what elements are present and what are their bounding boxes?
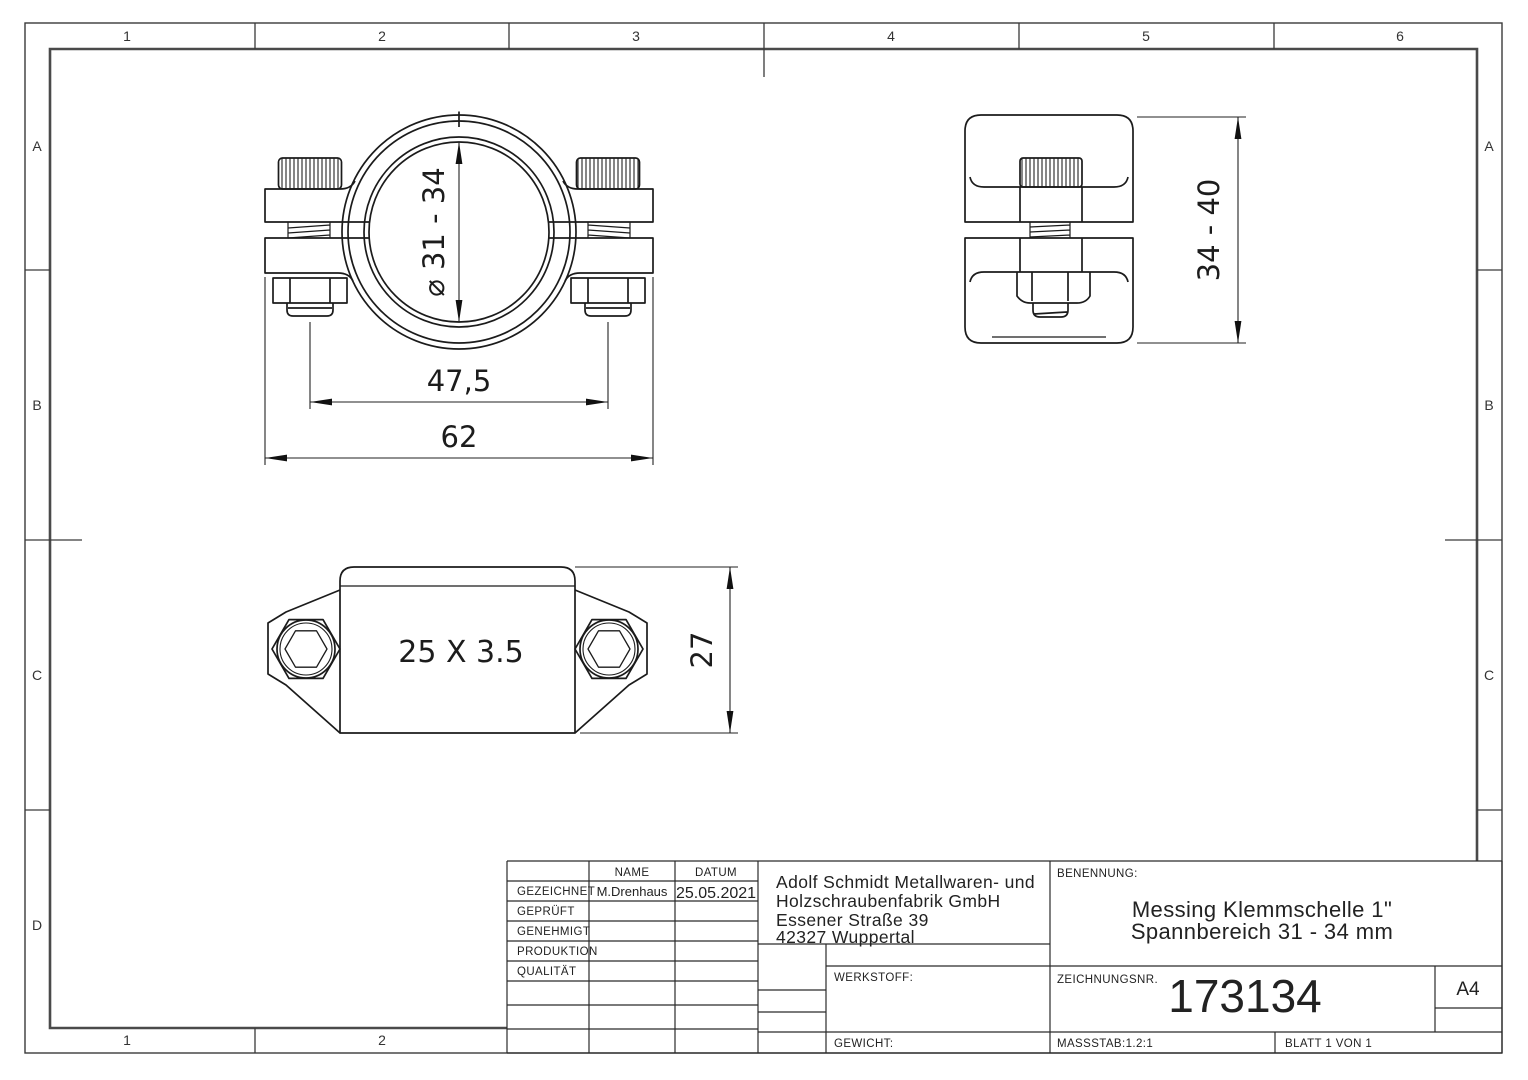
dim-label-depth: 27 — [685, 632, 719, 669]
thread-shaft — [588, 222, 630, 238]
zeichnungsnr-label: ZEICHNUNGSNR. — [1057, 974, 1158, 986]
approval-name-header: NAME — [615, 867, 650, 879]
approval-row-label: GEZEICHNET — [517, 886, 595, 898]
grid-row-label: C — [32, 667, 42, 683]
knurled-screw-head — [1020, 158, 1082, 187]
approval-row-label: GEPRÜFT — [517, 906, 575, 918]
dim-label-bolt-spacing: 47,5 — [427, 364, 492, 398]
lower-block — [965, 238, 1133, 343]
socket-hex — [285, 631, 327, 667]
approval-row-name: M.Drenhaus — [597, 884, 668, 899]
thread-shaft — [1030, 222, 1070, 238]
approval-date-header: DATUM — [695, 867, 737, 879]
approval-row-label: GENEHMIGT — [517, 926, 590, 938]
nut-collar — [287, 303, 333, 316]
drawing-canvas: 1 2 3 4 5 6 1 2 A B C D A B C — [0, 0, 1528, 1080]
company-line: 42327 Wuppertal — [776, 927, 915, 947]
grid-row-label: D — [32, 917, 42, 933]
lower-step — [970, 272, 1128, 282]
border-inner — [50, 49, 1477, 1028]
nut-collar — [585, 303, 631, 316]
scale-label: MASSSTAB:1.2:1 — [1057, 1038, 1153, 1050]
hex-nut — [571, 278, 645, 303]
nut-collar — [1033, 303, 1068, 317]
lower-flange — [265, 238, 369, 281]
grid-col-label: 5 — [1142, 28, 1150, 44]
grid-labels: 1 2 3 4 5 6 1 2 A B C D A B C — [32, 28, 1494, 1048]
side-view — [965, 115, 1133, 343]
upper-boss — [1020, 187, 1082, 222]
dim-label-diameter: ⌀ 31 - 34 — [417, 167, 451, 296]
grid-col-label: 1 — [123, 1032, 131, 1048]
approval-row-label: PRODUKTION — [517, 946, 598, 958]
grid-row-label: B — [1484, 397, 1493, 413]
werkstoff-label: WERKSTOFF: — [834, 972, 913, 984]
titleblock-text: NAME DATUM GEZEICHNET M.Drenhaus 25.05.2… — [517, 867, 1480, 1050]
drawing-number: 173134 — [1168, 970, 1322, 1022]
drawing-sheet: 1 2 3 4 5 6 1 2 A B C D A B C — [0, 0, 1528, 1080]
approval-row-date: 25.05.2021 — [676, 885, 756, 902]
lower-flange — [549, 238, 653, 281]
company-line: Adolf Schmidt Metallwaren- und — [776, 872, 1035, 892]
grid-row-label: A — [32, 138, 42, 154]
paper-format: A4 — [1456, 979, 1480, 1000]
grid-col-label: 3 — [632, 28, 640, 44]
grid-row-label: B — [32, 397, 41, 413]
socket-hex — [588, 631, 630, 667]
sheet-count-label: BLATT 1 VON 1 — [1285, 1038, 1372, 1050]
dim-label-width: 62 — [441, 420, 478, 454]
knurled-screw-head — [577, 158, 640, 189]
grid-col-label: 2 — [378, 1032, 386, 1048]
grid-col-label: 6 — [1396, 28, 1404, 44]
benennung-label: BENENNUNG: — [1057, 868, 1138, 880]
lower-boss — [1020, 238, 1082, 272]
gewicht-label: GEWICHT: — [834, 1038, 893, 1050]
approval-row-label: QUALITÄT — [517, 966, 576, 978]
grid-row-label: C — [1484, 667, 1494, 683]
right-hex-bolt — [575, 620, 643, 679]
grid-col-label: 1 — [123, 28, 131, 44]
thread-shaft — [288, 222, 330, 238]
grid-col-label: 2 — [378, 28, 386, 44]
left-hex-bolt — [272, 620, 340, 679]
hex-nut — [1017, 272, 1090, 303]
knurled-screw-head — [279, 158, 342, 189]
dim-label-profile: 25 X 3.5 — [398, 635, 524, 670]
company-line: Holzschraubenfabrik GmbH — [776, 891, 1001, 911]
dim-label-height: 34 - 40 — [1192, 179, 1226, 282]
part-title-line2: Spannbereich 31 - 34 mm — [1131, 919, 1393, 944]
grid-col-label: 4 — [887, 28, 895, 44]
grid-row-label: A — [1484, 138, 1494, 154]
hex-nut — [273, 278, 347, 303]
